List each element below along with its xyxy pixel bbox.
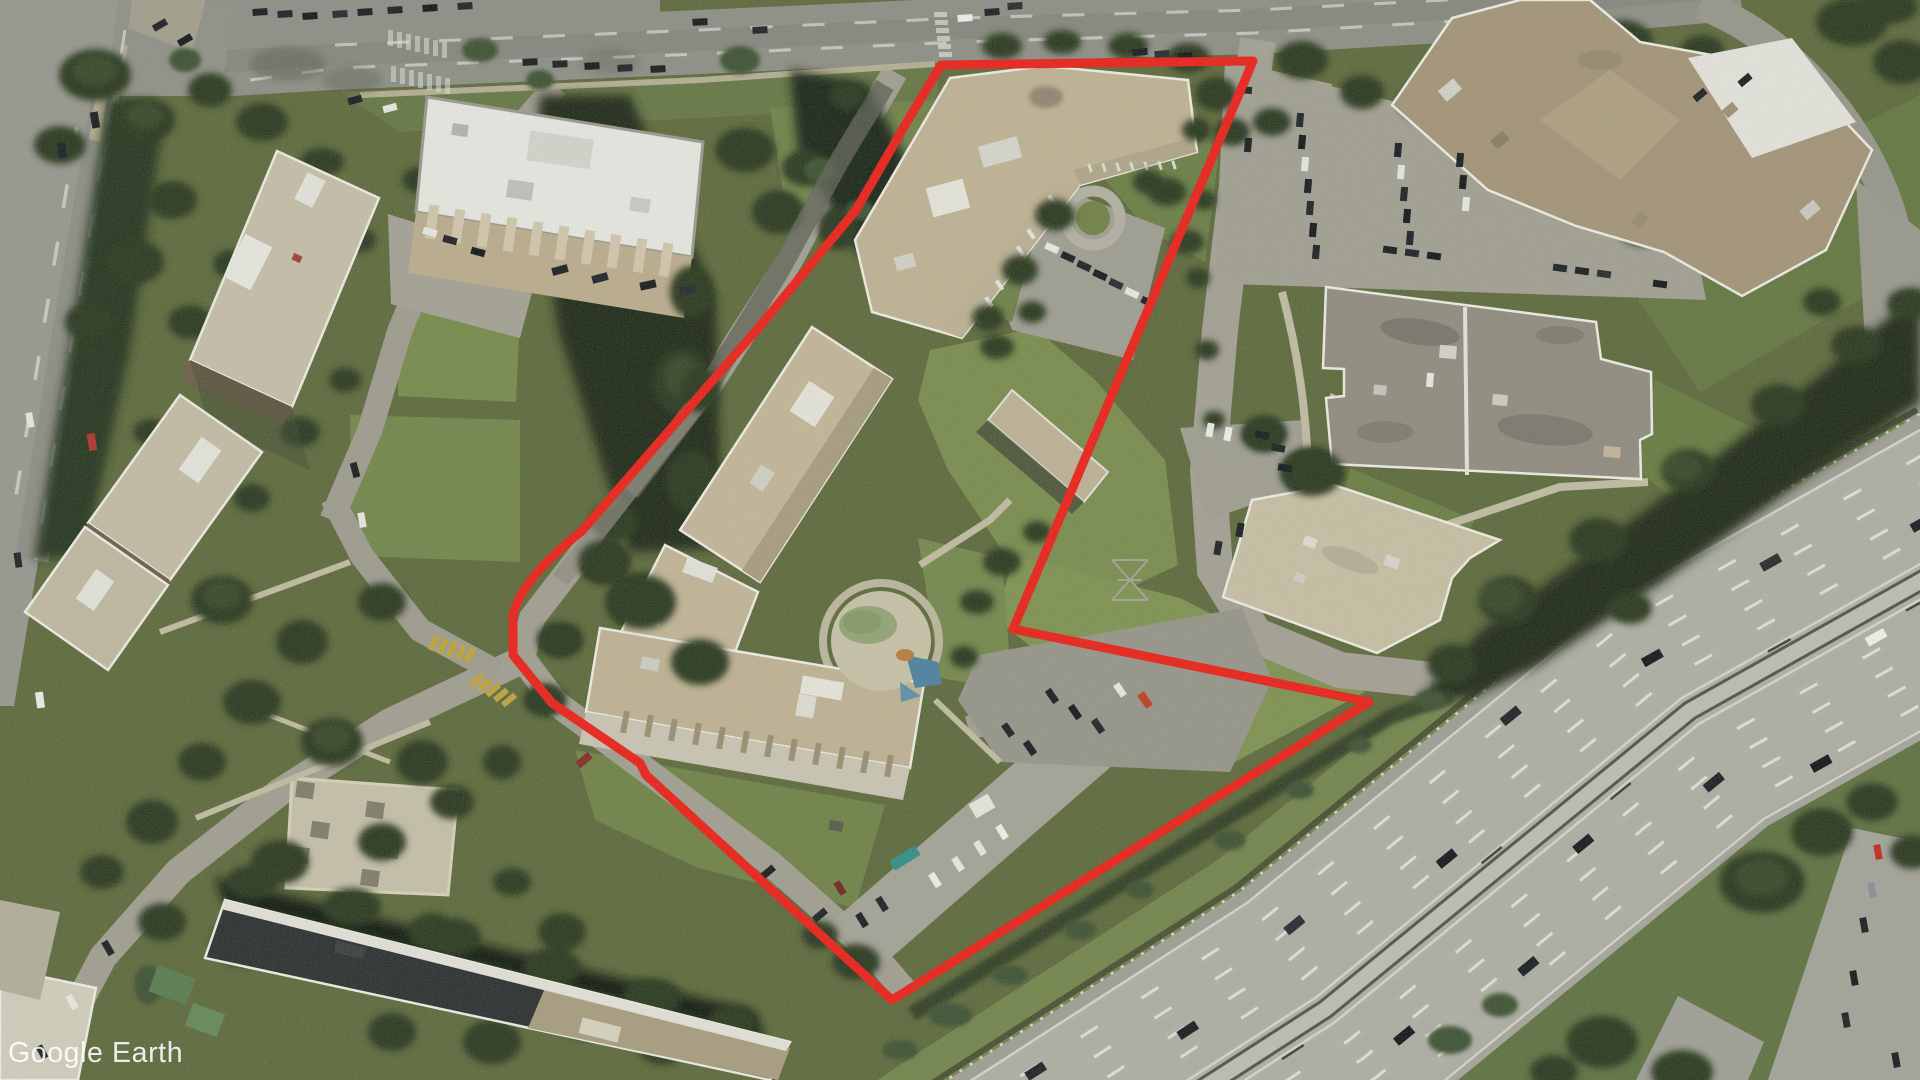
svg-text:Google Earth: Google Earth xyxy=(8,1037,183,1069)
